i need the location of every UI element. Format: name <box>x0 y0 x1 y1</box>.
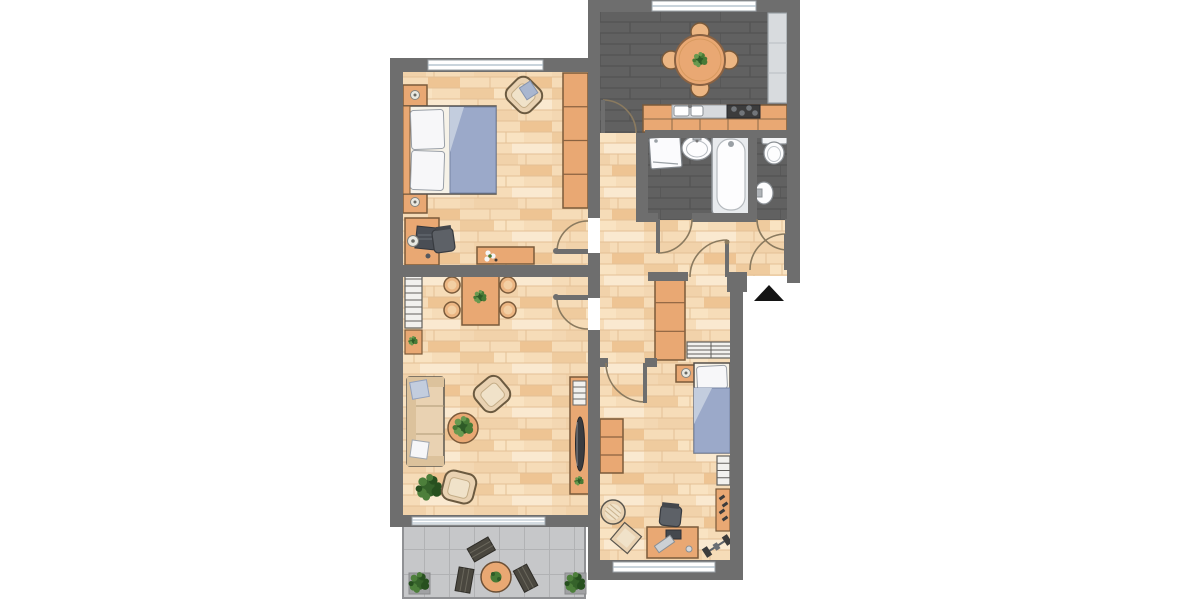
bathtub <box>712 134 750 216</box>
floor-plan <box>0 0 1200 600</box>
wardrobe-bedroom2 <box>600 419 623 473</box>
coffee-table-living <box>448 413 478 443</box>
wall-bedroom2-right <box>730 283 743 580</box>
floor-corridor <box>600 133 636 223</box>
kitchen-tall-cabinet <box>768 13 787 103</box>
window-kitchen <box>652 1 756 11</box>
kitchen-counter <box>643 104 787 132</box>
wall-shelf-bedroom2 <box>717 456 730 485</box>
wall-bath-wc-divider <box>748 133 757 222</box>
desk-bedroom2 <box>647 527 698 558</box>
double-bed-bedroom1 <box>403 106 496 194</box>
nightstand-bottom-bedroom1 <box>403 192 427 213</box>
wall-bathroom-bottom-mid <box>692 213 748 222</box>
wall-mid-middle <box>588 253 600 298</box>
wall-left <box>390 58 403 527</box>
washing-machine <box>649 136 682 169</box>
wall-hall-bottom <box>648 272 688 281</box>
wall-bedroom1-living-divider <box>390 265 588 277</box>
tv-board-living <box>570 377 589 494</box>
wall-bathroom-left <box>636 133 648 222</box>
terrace-bush-left <box>408 572 430 594</box>
dresser-bedroom1 <box>477 247 534 264</box>
wc-sink <box>755 182 773 204</box>
shelf-hall <box>687 342 735 358</box>
nightstand-top-bedroom1 <box>403 85 427 106</box>
terrace-bush-right <box>564 572 586 594</box>
sofa-living <box>407 377 444 466</box>
kitchen-table <box>675 35 725 85</box>
single-bed-bedroom2 <box>694 363 730 453</box>
terrace-table <box>481 562 511 592</box>
desk-chair-bedroom2 <box>659 502 682 527</box>
plant-cabinet-living <box>405 330 422 354</box>
bookshelf-living <box>405 272 422 328</box>
dining-table-living <box>462 271 499 325</box>
window-bedroom2 <box>613 562 715 572</box>
wardrobe-hall <box>655 274 685 360</box>
fitness-rack-bedroom2 <box>716 489 730 531</box>
window-terrace-door <box>412 517 545 525</box>
window-bedroom1 <box>428 60 543 70</box>
floor-plan-page <box>0 0 1200 600</box>
wardrobe-bedroom1 <box>563 73 588 208</box>
wall-mid-upper <box>588 12 600 218</box>
entrance-arrow <box>754 285 784 301</box>
wall-mid-lower <box>588 330 600 580</box>
layer-annotations <box>754 285 784 301</box>
wall-counter-back <box>645 130 787 138</box>
